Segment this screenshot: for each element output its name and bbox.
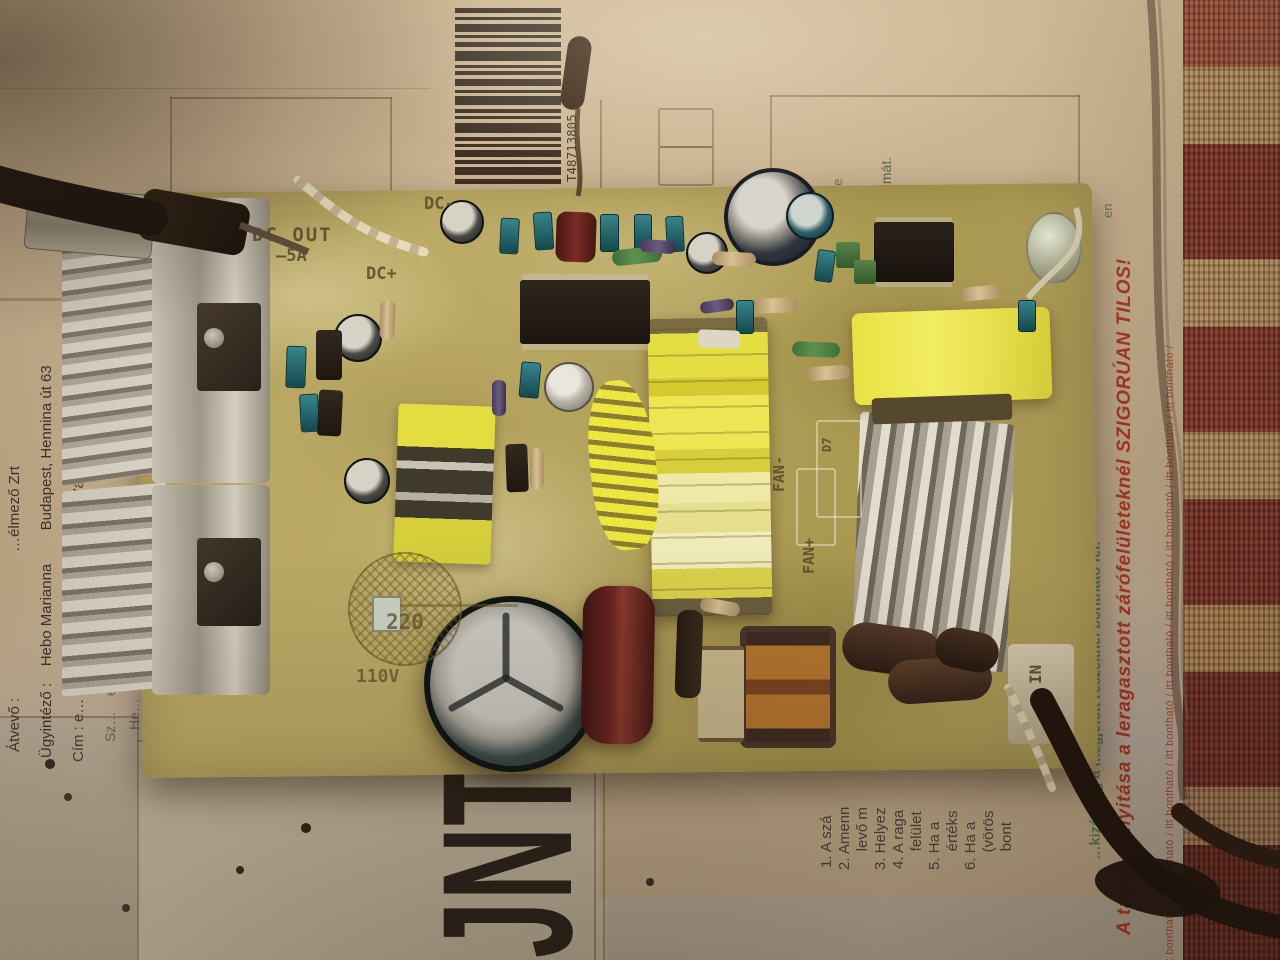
silkscreen-220: 220 <box>386 610 424 634</box>
instruction-item: 2. Amenn <box>836 807 853 870</box>
instruction-item: 1. A szá <box>818 815 835 868</box>
ic-dip16 <box>520 280 650 344</box>
bag-shading-bottom-left <box>0 716 137 960</box>
bag-crease <box>0 88 430 89</box>
rectifier <box>317 389 343 436</box>
power-transistor <box>197 303 261 391</box>
dust-specks <box>0 0 4 4</box>
instruction-item: 5. Ha a <box>926 822 943 870</box>
text-fragment: en <box>1100 204 1115 218</box>
form-checkbox <box>658 146 714 186</box>
silkscreen-110v: 110V <box>356 666 399 687</box>
instruction-item: (vörös <box>980 811 997 869</box>
glass-diode <box>1026 212 1082 284</box>
silkscreen-d7: D7 <box>820 438 834 452</box>
ic-dip8 <box>874 222 954 282</box>
film-capacitor <box>736 300 754 334</box>
resistor-green <box>792 341 840 358</box>
capacitor-green <box>854 260 876 284</box>
barcode <box>455 8 561 186</box>
address-line: Átvevő : …élmező Zrt <box>6 466 23 752</box>
metal-can-capacitor <box>544 362 594 412</box>
transistor-screw <box>204 562 224 582</box>
capacitor-blue <box>786 192 834 240</box>
transformer-main <box>647 317 772 617</box>
instruction-item: levő m <box>854 807 871 868</box>
resistor <box>379 300 395 340</box>
film-capacitor <box>285 346 306 389</box>
silkscreen-dc-amps: –5A <box>276 246 307 266</box>
form-checkbox <box>658 108 714 148</box>
diode <box>640 239 677 254</box>
instruction-item: felület <box>908 811 925 868</box>
form-line <box>170 97 392 99</box>
silkscreen-dc-out: DC OUT <box>252 224 333 246</box>
form-line <box>770 95 1080 97</box>
instruction-item: 3. Helyez <box>872 807 889 870</box>
silkscreen-fan-plus: FAN+ <box>800 538 818 574</box>
form-line <box>137 716 139 960</box>
film-capacitor <box>600 214 619 252</box>
capacitor-red <box>555 211 597 262</box>
rectifier <box>505 444 529 493</box>
film-capacitor <box>518 361 541 399</box>
silkscreen-box <box>796 468 836 546</box>
film-capacitor <box>499 218 520 255</box>
capacitor-dark <box>674 610 703 699</box>
transistor-screw <box>204 328 224 348</box>
address-line: He… <box>126 698 142 730</box>
instruction-item: 4. A raga <box>890 810 907 869</box>
common-mode-choke <box>740 626 836 748</box>
power-cord-housing <box>23 185 156 260</box>
instruction-item: értéks <box>944 810 961 868</box>
voltage-selector-area <box>348 552 462 666</box>
bag-crease <box>0 298 62 301</box>
form-line <box>390 97 392 197</box>
terminal-connector <box>1008 644 1074 744</box>
silkscreen-dc-plus: DC+ <box>366 264 397 284</box>
instruction-item: bont <box>998 822 1015 868</box>
instruction-item: 6. Ha a <box>962 822 979 870</box>
resistor <box>712 251 757 267</box>
rectifier <box>316 330 342 380</box>
red-warning-text: A tasak felnyitása a leragasztott zárófe… <box>1114 258 1136 935</box>
edge-text: itt bontható / itt bontható / itt bontha… <box>1164 345 1176 960</box>
diode <box>492 380 506 416</box>
silkscreen-fan-minus: FAN- <box>770 456 788 492</box>
ferrite-core <box>872 394 1013 425</box>
silkscreen-in: IN <box>1026 665 1045 684</box>
terminal-connector <box>698 646 744 742</box>
capacitor-maroon <box>581 585 656 744</box>
resistor <box>752 297 798 314</box>
power-transistor <box>197 538 261 626</box>
resistor <box>530 448 544 490</box>
selector-line <box>400 604 518 607</box>
bag-logo-letters: JNT <box>402 762 614 958</box>
fabric-background <box>1183 0 1280 960</box>
ceramic-capacitor <box>698 329 741 348</box>
barcode-number: T48713805 <box>564 114 579 182</box>
address-line: Ügyintéző : Hebo Marianna Budapest, Henn… <box>38 365 55 758</box>
film-capacitor <box>1018 300 1036 332</box>
film-capacitor <box>533 211 555 250</box>
photo-circuit-board-on-courier-bag: T48713805 Átvevő : …élmező Zrt Ügyintéző… <box>0 0 1280 960</box>
solder-blob-on-barcode <box>559 35 593 112</box>
silkscreen-dc-minus: DC- <box>424 194 455 214</box>
electrolytic-capacitor-small <box>344 458 390 504</box>
transformer-aux <box>393 403 495 564</box>
